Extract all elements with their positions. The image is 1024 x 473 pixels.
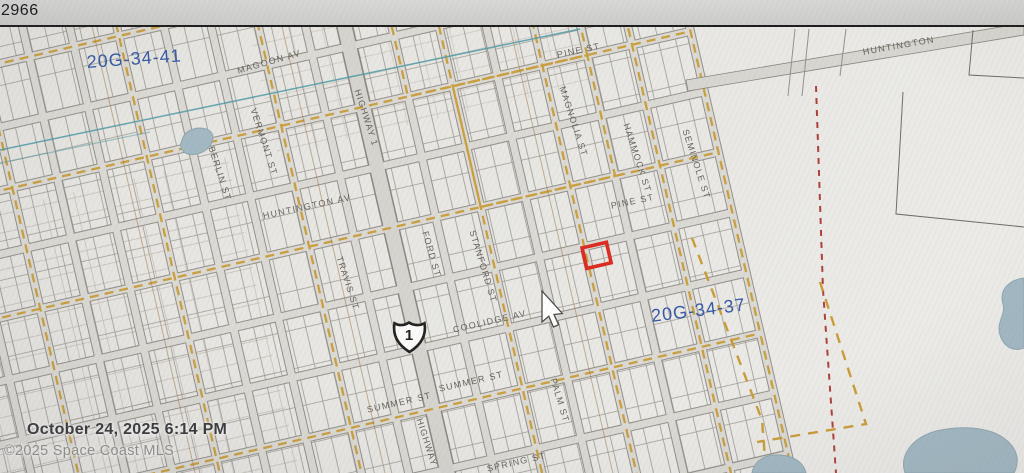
screenshot-root: MAGOON AV PINE ST HUNTINGTON MAGNOLIA ST… — [0, 0, 1024, 473]
us-highway-1-number: 1 — [394, 327, 424, 344]
window-top-bar: 2966 — [0, 0, 1024, 27]
timestamp-overlay: October 24, 2025 6:14 PM — [27, 421, 227, 439]
mls-number: 2966 — [1, 2, 39, 20]
copyright-overlay: ©2025 Space Coast MLS — [4, 443, 174, 459]
plat-map-canvas[interactable] — [0, 0, 1024, 473]
